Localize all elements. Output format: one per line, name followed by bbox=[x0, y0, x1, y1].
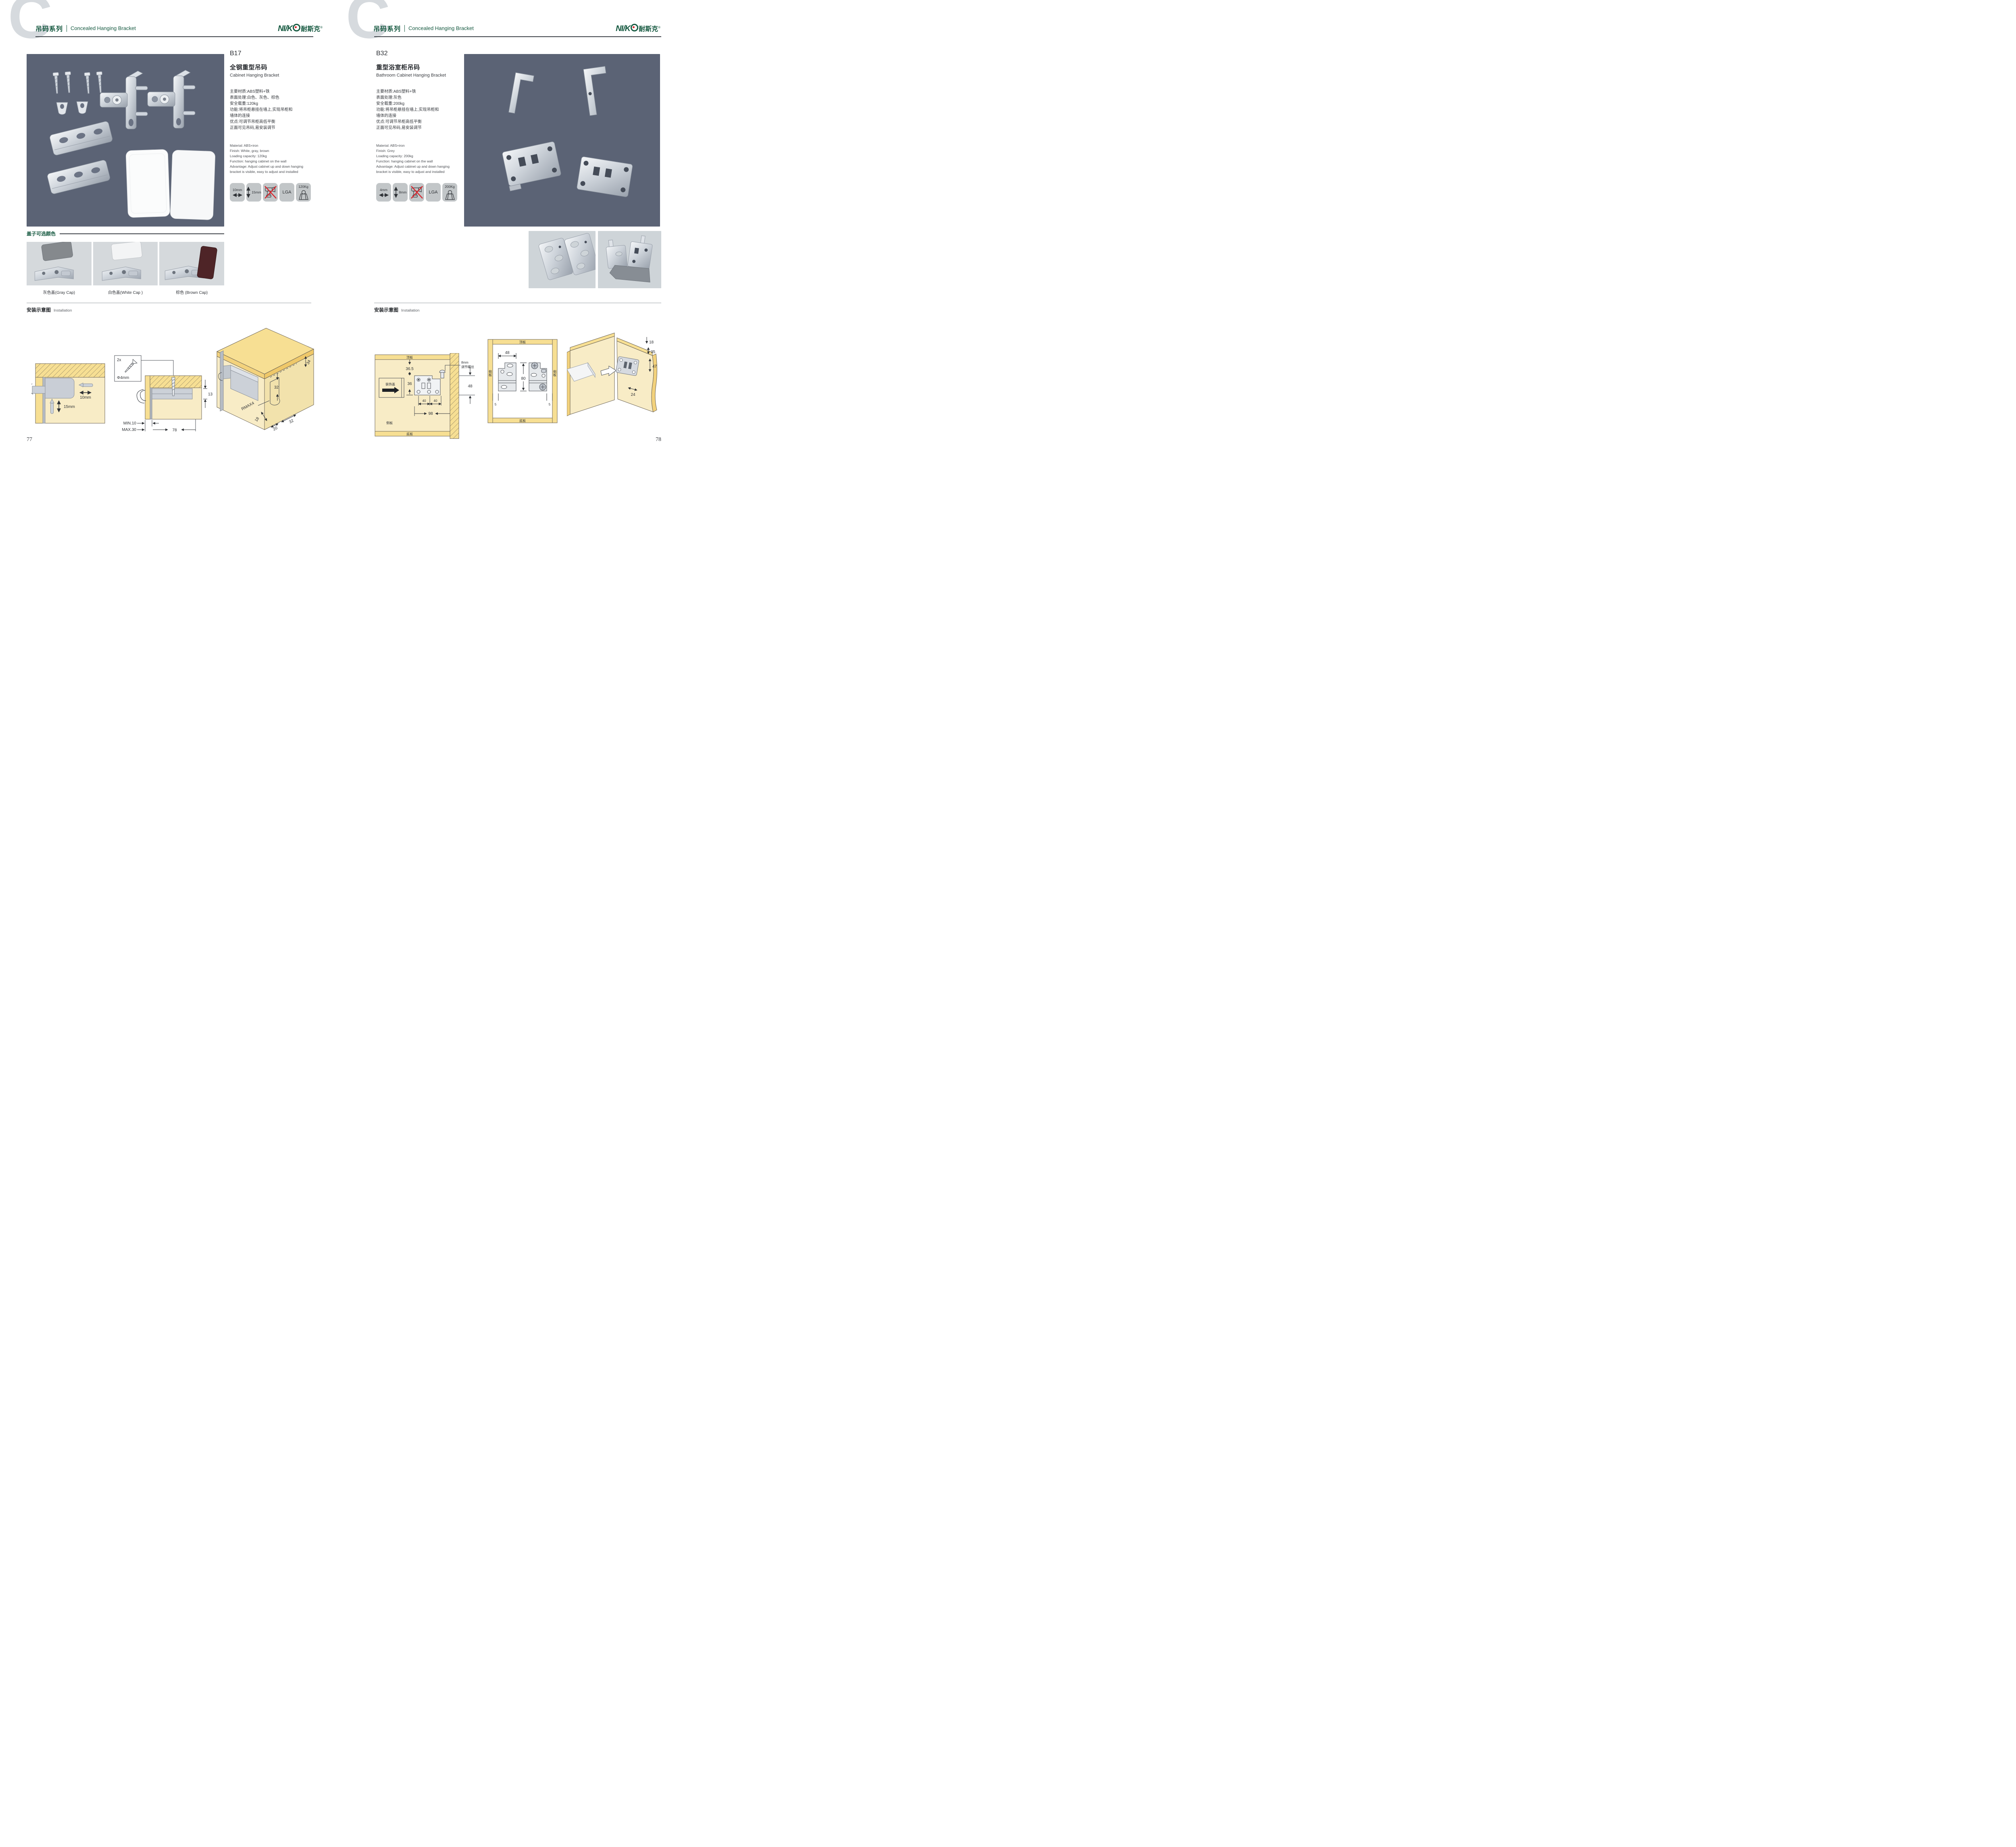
screw-qty: 2x bbox=[117, 358, 121, 362]
logo-text-cn: 耐斯克 bbox=[301, 26, 320, 33]
badge-panel-width: 4mm bbox=[376, 183, 391, 202]
cap-label: 白色盖(White Cap ) bbox=[93, 289, 158, 295]
spec-line: 正面可见吊码,易安装调节 bbox=[376, 125, 463, 131]
no-drill-icon bbox=[264, 185, 277, 199]
install-diagram-perspective: 34 32 RMAX4 18 20 32 bbox=[210, 326, 319, 431]
dim-98: 98 bbox=[428, 412, 433, 416]
vertical-arrow-icon bbox=[246, 186, 250, 199]
dim-5-right: 5 bbox=[549, 403, 551, 406]
dim-32b: 32 bbox=[288, 418, 294, 424]
horizontal-arrow-icon bbox=[378, 193, 389, 197]
install-diagram-section: 2x Φ4mm 13 MIN.10 MAX.30 bbox=[114, 355, 215, 432]
cap-photo-white bbox=[93, 242, 158, 285]
dim-32: 32 bbox=[274, 385, 279, 390]
page-number: 77 bbox=[27, 437, 32, 443]
section-divider bbox=[27, 303, 311, 303]
heading-rule bbox=[60, 233, 224, 234]
cap-option-brown: 棕色 (Brown Cap) bbox=[159, 242, 224, 295]
feature-badges: 10mm 15mm LGA 120Kg bbox=[230, 183, 317, 202]
spec-line: 主要材质:ABS塑料+铁 bbox=[230, 89, 317, 95]
install-diagram-front: 顶板 底板 侧板 侧板 48 80 5 5 bbox=[486, 338, 559, 424]
cap-color-options: 灰色盖(Gray Cap) 白色盖(White Cap ) bbox=[27, 242, 224, 295]
cap-colors-heading: 盖子可选颜色 bbox=[27, 230, 56, 237]
product-code: B17 bbox=[230, 50, 317, 57]
specs-en: Material: ABS+iron Finish: White, gray, … bbox=[230, 143, 317, 175]
product-info-b32: B32 重型浴室柜吊码 Bathroom Cabinet Hanging Bra… bbox=[376, 50, 463, 202]
dim-48: 48 bbox=[468, 384, 473, 389]
section-divider bbox=[374, 303, 661, 303]
label-bottom-panel: 底板 bbox=[519, 419, 526, 423]
logo-o-icon bbox=[293, 24, 300, 31]
product-code: B32 bbox=[376, 50, 463, 57]
page-header: 吊码系列Concealed Hanging Bracket NI/K耐斯克® bbox=[35, 23, 323, 35]
badge-lga: LGA bbox=[279, 183, 294, 202]
dim-47: 47 bbox=[652, 364, 657, 369]
dim-36-5: 36.5 bbox=[406, 367, 414, 371]
installation-heading-cn: 安装示意图 bbox=[27, 307, 51, 313]
badge-max-load: 200Kg bbox=[442, 183, 457, 202]
dim-35: 35 bbox=[651, 350, 656, 354]
gray-cap-illustration bbox=[27, 242, 92, 285]
badge-no-drill bbox=[409, 183, 424, 202]
spec-line: 表面处理:灰色 bbox=[376, 95, 463, 101]
install-diagram-clearance: 10mm 15mm bbox=[31, 357, 108, 426]
installation-heading-en: Installation bbox=[401, 308, 419, 313]
dim-10mm: 10mm bbox=[80, 395, 91, 400]
header-rule bbox=[35, 36, 313, 37]
registered-mark: ® bbox=[320, 26, 323, 29]
spec-line: Finish: White, gray, brown bbox=[230, 148, 317, 154]
install-diagram-corner-perspective: 18 35 47 24 bbox=[567, 332, 661, 422]
horizontal-arrow-icon bbox=[232, 193, 243, 197]
spec-line: 安全载重:120kg bbox=[230, 101, 317, 107]
dim-36: 36 bbox=[407, 382, 412, 386]
dim-40a: 40 bbox=[423, 399, 426, 403]
product-name-cn: 全钢重型吊码 bbox=[230, 63, 317, 71]
label-side-right: 侧板 bbox=[553, 370, 557, 377]
spec-line: bracket is visible, easy to adjust and i… bbox=[230, 169, 317, 175]
spec-line: Finish: Grey bbox=[376, 148, 463, 154]
spec-line: 表面处理:白色、灰色、棕色 bbox=[230, 95, 317, 101]
brackets-illustration bbox=[598, 231, 661, 288]
badge-label: 10mm bbox=[233, 188, 242, 192]
dim-40b: 40 bbox=[434, 399, 437, 403]
series-title-cn: 吊码系列 bbox=[373, 26, 401, 33]
badge-panel-width: 10mm bbox=[230, 183, 245, 202]
spec-line: Material: ABS+iron bbox=[230, 143, 317, 148]
cap-label: 灰色盖(Gray Cap) bbox=[27, 289, 92, 295]
spec-line: 安全载重:200kg bbox=[376, 101, 463, 107]
spec-line: 主要材质:ABS塑料+铁 bbox=[376, 89, 463, 95]
nisko-logo: NI/K耐斯克® bbox=[616, 23, 660, 33]
catalog-spread: C 吊码系列Concealed Hanging Bracket NI/K耐斯克® bbox=[0, 0, 676, 462]
series-title-cn: 吊码系列 bbox=[35, 26, 63, 33]
spec-line: Loading capacity: 200kg bbox=[376, 154, 463, 159]
spec-line: 墙体的连接 bbox=[230, 113, 317, 119]
logo-text-en: NI/K bbox=[616, 24, 630, 33]
product-name-cn: 重型浴室柜吊码 bbox=[376, 63, 463, 71]
badge-label: 8mm bbox=[399, 190, 407, 194]
badge-label: LGA bbox=[282, 190, 291, 195]
white-cap-illustration bbox=[93, 242, 158, 285]
series-title-en: Concealed Hanging Bracket bbox=[71, 25, 136, 31]
screw-diameter: Φ4mm bbox=[117, 376, 129, 380]
spec-line: Function: hanging cabinet on the wall bbox=[376, 159, 463, 164]
cap-label: 棕色 (Brown Cap) bbox=[159, 289, 224, 295]
specs-en: Material: ABS+iron Finish: Grey Loading … bbox=[376, 143, 463, 175]
dim-48: 48 bbox=[505, 351, 510, 355]
cap-photo-brown bbox=[159, 242, 224, 285]
weight-icon bbox=[298, 190, 310, 200]
product-photo-b32 bbox=[464, 54, 660, 227]
spec-line: Advantage: Adjust cabinet up and down ha… bbox=[376, 164, 463, 169]
logo-red-dot-icon bbox=[633, 26, 635, 28]
series-title-en: Concealed Hanging Bracket bbox=[408, 25, 474, 31]
dim-24: 24 bbox=[631, 393, 635, 397]
dim-15mm: 15mm bbox=[64, 405, 75, 409]
dim-18: 18 bbox=[649, 340, 654, 345]
badge-max-load: 120Kg bbox=[296, 183, 311, 202]
label-top-panel: 顶板 bbox=[519, 340, 526, 344]
spec-line: 正面可见吊码,易安装调节 bbox=[230, 125, 317, 131]
spec-line: Advantage: Adjust cabinet up and down ha… bbox=[230, 164, 317, 169]
product-info-b17: B17 全钢重型吊码 Cabinet Hanging Bracket 主要材质:… bbox=[230, 50, 317, 202]
spec-line: Loading capacity: 120kg bbox=[230, 154, 317, 159]
product-name-en: Bathroom Cabinet Hanging Bracket bbox=[376, 73, 463, 78]
brown-cap-illustration bbox=[159, 242, 224, 285]
weight-icon bbox=[444, 190, 456, 200]
spec-line: 功能:将吊柜悬挂在墙上,实现吊柜和 bbox=[230, 107, 317, 113]
badge-panel-height: 8mm bbox=[393, 183, 408, 202]
spec-line: 优点:可调节吊柜高低平衡 bbox=[376, 119, 463, 125]
label-cover: 装饰盖 bbox=[385, 382, 395, 386]
badge-label: LGA bbox=[429, 190, 437, 195]
spec-line: Function: hanging cabinet on the wall bbox=[230, 159, 317, 164]
specs-cn: 主要材质:ABS塑料+铁 表面处理:灰色 安全载重:200kg 功能:将吊柜悬挂… bbox=[376, 89, 463, 131]
badge-no-drill bbox=[263, 183, 278, 202]
badge-label: 15mm bbox=[252, 190, 261, 194]
header-divider bbox=[67, 25, 67, 32]
product-name-en: Cabinet Hanging Bracket bbox=[230, 73, 317, 78]
installation-heading: 安装示意图Installation bbox=[27, 306, 72, 314]
badge-lga: LGA bbox=[426, 183, 441, 202]
spec-line: 功能:将吊柜悬挂在墙上,实现吊柜和 bbox=[376, 107, 463, 113]
header-divider bbox=[404, 25, 405, 32]
logo-o-icon bbox=[631, 24, 638, 31]
page-number: 78 bbox=[656, 437, 661, 443]
vertical-arrow-icon bbox=[394, 186, 398, 199]
page-header: 吊码系列Concealed Hanging Bracket NI/K耐斯克® bbox=[373, 23, 660, 35]
cap-colors-heading-row: 盖子可选颜色 bbox=[27, 230, 224, 237]
screw-in-panel bbox=[172, 377, 175, 396]
cap-option-white: 白色盖(White Cap ) bbox=[93, 242, 158, 295]
plates-illustration bbox=[529, 231, 596, 288]
label-side-panel: 侧板 bbox=[386, 421, 393, 425]
dim-80: 80 bbox=[521, 376, 526, 381]
detail-photo-brackets bbox=[598, 231, 661, 288]
installation-heading: 安装示意图Installation bbox=[374, 306, 419, 314]
dim-5-left: 5 bbox=[495, 403, 497, 406]
registered-mark: ® bbox=[658, 26, 660, 29]
specs-cn: 主要材质:ABS塑料+铁 表面处理:白色、灰色、棕色 安全载重:120kg 功能… bbox=[230, 89, 317, 131]
b32-photo-illustration bbox=[464, 54, 660, 227]
spec-line: bracket is visible, easy to adjust and i… bbox=[376, 169, 463, 175]
logo-text-cn: 耐斯克 bbox=[639, 26, 658, 33]
dim-78: 78 bbox=[172, 428, 177, 432]
label-side-left: 侧板 bbox=[489, 370, 492, 377]
bracket-plate bbox=[616, 356, 639, 376]
logo-text-en: NI/K bbox=[278, 24, 292, 33]
header-rule bbox=[374, 36, 661, 37]
product-photo-b17 bbox=[27, 54, 224, 227]
label-screw-size: 8mm bbox=[461, 361, 469, 364]
no-drill-icon bbox=[411, 185, 423, 199]
spec-line: 优点:可调节吊柜高低平衡 bbox=[230, 119, 317, 125]
page-78: C 吊码系列Concealed Hanging Bracket NI/K耐斯克®… bbox=[338, 0, 676, 462]
label-screw-name: 调节螺丝 bbox=[461, 365, 474, 369]
nisko-logo: NI/K耐斯克® bbox=[278, 23, 323, 33]
installation-heading-en: Installation bbox=[54, 308, 72, 313]
dim-max30: MAX.30 bbox=[122, 428, 136, 432]
spec-line: Material: ABS+iron bbox=[376, 143, 463, 148]
dim-20: 20 bbox=[272, 426, 278, 431]
badge-label: 200Kg bbox=[445, 185, 455, 189]
label-bottom-panel: 底板 bbox=[406, 432, 413, 436]
cap-option-gray: 灰色盖(Gray Cap) bbox=[27, 242, 92, 295]
logo-red-dot-icon bbox=[295, 26, 297, 28]
spec-line: 墙体的连接 bbox=[376, 113, 463, 119]
page-77: C 吊码系列Concealed Hanging Bracket NI/K耐斯克® bbox=[0, 0, 338, 462]
badge-panel-height: 15mm bbox=[246, 183, 261, 202]
installation-heading-cn: 安装示意图 bbox=[374, 307, 398, 313]
detail-photo-plates bbox=[529, 231, 596, 288]
dim-min10: MIN.10 bbox=[123, 421, 137, 426]
cap-photo-gray bbox=[27, 242, 92, 285]
label-top-panel: 顶板 bbox=[406, 356, 413, 360]
badge-label: 4mm bbox=[380, 188, 387, 192]
feature-badges: 4mm 8mm LGA 200Kg bbox=[376, 183, 463, 202]
badge-label: 120Kg bbox=[298, 185, 308, 189]
b17-photo-illustration bbox=[27, 54, 224, 227]
install-diagram-side-section: 顶板 底板 装饰盖 8mm 调节螺丝 36.5 36 40 bbox=[374, 353, 479, 445]
